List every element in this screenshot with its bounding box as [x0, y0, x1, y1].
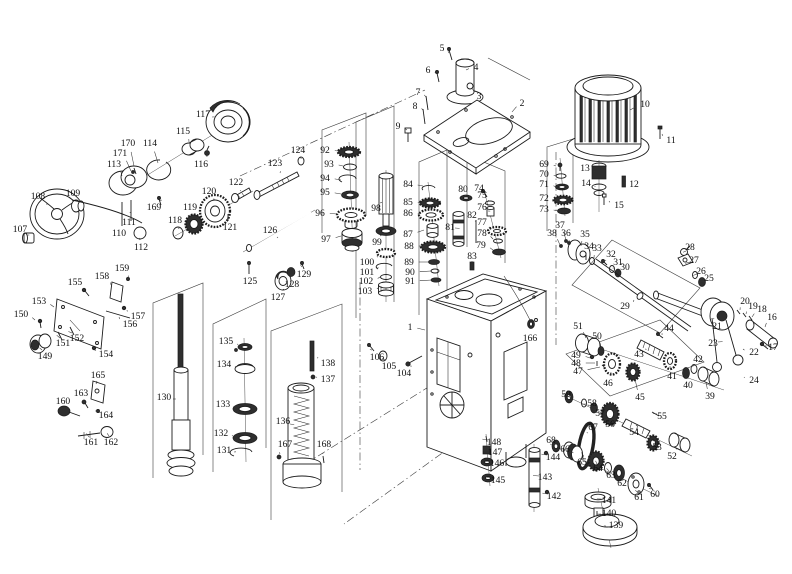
- leader-line-15: [609, 201, 610, 202]
- spindle-stack-c: [376, 170, 396, 302]
- leader-line-103: [377, 288, 378, 289]
- part-label-29: 29: [620, 301, 630, 312]
- leader-line-154: [95, 350, 96, 351]
- part-label-27: 27: [689, 255, 699, 266]
- part-label-165: 165: [91, 370, 106, 381]
- part-label-10: 10: [640, 99, 650, 110]
- part-label-32: 32: [606, 249, 616, 260]
- leader-line-159: [128, 276, 129, 277]
- part-label-137: 137: [321, 374, 336, 385]
- part-label-104: 104: [397, 368, 412, 379]
- exploded-parts-diagram: 1234567891011121314151617181920212223242…: [0, 0, 792, 574]
- part-label-107: 107: [13, 224, 28, 235]
- part-label-76: 76: [477, 202, 487, 213]
- part-label-9: 9: [396, 121, 401, 132]
- leader-line-84: [418, 185, 423, 186]
- part-label-131: 131: [217, 445, 232, 456]
- part-label-46: 46: [603, 378, 613, 389]
- part-label-155: 155: [68, 277, 83, 288]
- leader-line-79: [490, 248, 493, 250]
- snap-ring-114: [147, 160, 171, 180]
- part-label-86: 86: [403, 208, 413, 219]
- body-window: [437, 338, 460, 392]
- part-label-15: 15: [614, 200, 624, 211]
- part-label-151: 151: [56, 338, 71, 349]
- part-label-77: 77: [477, 217, 487, 228]
- part-label-79: 79: [476, 240, 486, 251]
- part-label-139: 139: [609, 520, 624, 531]
- part-label-161: 161: [84, 437, 99, 448]
- screw-137: [311, 375, 315, 379]
- part-label-11: 11: [666, 135, 675, 146]
- leader-line-156: [119, 317, 120, 319]
- part-label-118: 118: [168, 215, 182, 226]
- part-label-65: 65: [577, 457, 587, 468]
- leader-line-97: [336, 236, 341, 238]
- part-label-149: 149: [38, 351, 53, 362]
- part-label-40: 40: [683, 380, 693, 391]
- part-label-57: 57: [595, 408, 605, 419]
- part-label-66: 66: [560, 444, 570, 455]
- part-label-80: 80: [458, 184, 468, 195]
- part-label-78: 78: [477, 228, 487, 239]
- part-label-127: 127: [271, 292, 286, 303]
- body-spoked-port: [440, 392, 464, 418]
- motor-coupling: [592, 166, 606, 179]
- leader-line-150: [32, 318, 35, 320]
- part-label-8: 8: [413, 101, 418, 112]
- part-label-142: 142: [547, 491, 562, 502]
- part-label-112: 112: [134, 242, 148, 253]
- leader-line-24: [744, 377, 745, 378]
- small-plate-158: [110, 282, 123, 302]
- part-label-68: 68: [546, 435, 556, 446]
- part-label-154: 154: [99, 349, 114, 360]
- part-label-163: 163: [74, 388, 89, 399]
- part-label-53: 53: [652, 442, 662, 453]
- part-label-35: 35: [580, 229, 590, 240]
- leader-line-47: [588, 367, 600, 370]
- part-label-17: 17: [768, 342, 778, 353]
- column-shaft: [167, 294, 195, 476]
- pulley-cluster: [23, 100, 305, 243]
- leader-line-95: [335, 193, 341, 194]
- leader-line-93: [339, 165, 343, 166]
- part-labels: 1234567891011121314151617181920212223242…: [13, 43, 778, 531]
- nut-128: [287, 268, 295, 277]
- part-label-13: 13: [580, 163, 590, 174]
- part-label-91: 91: [405, 276, 415, 287]
- leader-line-18: [752, 314, 754, 317]
- leader-line-138: [318, 357, 319, 358]
- leader-line-45: [635, 379, 637, 390]
- leader-line-19: [746, 312, 747, 315]
- screw-168: [323, 456, 324, 463]
- part-label-132: 132: [214, 428, 229, 439]
- part-label-134: 134: [217, 359, 232, 370]
- part-label-92: 92: [320, 145, 330, 156]
- leader-line-1: [417, 328, 425, 330]
- diagram-canvas: 1234567891011121314151617181920212223242…: [0, 0, 792, 574]
- part-label-141: 141: [602, 495, 617, 506]
- part-label-60: 60: [650, 489, 660, 500]
- part-label-34: 34: [584, 241, 594, 252]
- leader-line-87: [418, 230, 425, 232]
- leader-line-69: [554, 165, 556, 166]
- part-label-51: 51: [573, 321, 583, 332]
- part-label-38: 38: [547, 228, 557, 239]
- leader-line-49: [586, 357, 590, 359]
- part-label-81: 81: [445, 222, 455, 233]
- part-label-126: 126: [263, 225, 278, 236]
- bearing-hub: [109, 166, 147, 195]
- handwheel-handle: [72, 200, 85, 212]
- part-label-49: 49: [571, 350, 581, 361]
- part-label-1: 1: [408, 322, 413, 333]
- part-label-122: 122: [229, 177, 244, 188]
- part-label-56: 56: [605, 419, 615, 430]
- part-label-97: 97: [321, 234, 331, 245]
- part-label-43: 43: [634, 349, 644, 360]
- part-label-140: 140: [602, 508, 617, 519]
- part-label-22: 22: [749, 347, 759, 358]
- part-label-23: 23: [708, 338, 718, 349]
- motor-bolt: [658, 126, 662, 139]
- part-label-133: 133: [216, 399, 231, 410]
- part-label-108: 108: [31, 191, 46, 202]
- leader-line-5: [448, 51, 449, 53]
- part-label-14: 14: [581, 178, 591, 189]
- leader-line-94: [335, 179, 341, 180]
- part-label-72: 72: [539, 193, 549, 204]
- leader-line-132: [232, 435, 233, 436]
- part-label-130: 130: [157, 392, 172, 403]
- leader-line-2: [512, 107, 517, 112]
- part-label-7: 7: [416, 87, 421, 98]
- part-label-71: 71: [539, 179, 549, 190]
- part-label-106: 106: [370, 352, 385, 363]
- part-label-98: 98: [371, 203, 381, 214]
- set-screw-116: [205, 146, 210, 156]
- motor-gear-stack: [554, 158, 573, 216]
- part-label-16: 16: [767, 312, 777, 323]
- hub-149: [30, 334, 51, 353]
- leader-line-102: [378, 277, 380, 279]
- part-label-146: 146: [490, 458, 505, 469]
- part-label-83: 83: [467, 251, 477, 262]
- part-label-103: 103: [358, 286, 373, 297]
- part-label-120: 120: [202, 186, 217, 197]
- part-label-110: 110: [112, 228, 126, 239]
- part-label-28: 28: [685, 242, 695, 253]
- part-label-152: 152: [70, 333, 85, 344]
- part-label-138: 138: [321, 358, 336, 369]
- part-label-12: 12: [629, 179, 639, 190]
- part-label-167: 167: [278, 439, 293, 450]
- leader-line-78: [491, 237, 493, 240]
- part-label-44: 44: [664, 323, 674, 334]
- leader-line-99: [380, 235, 381, 236]
- part-label-166: 166: [523, 333, 538, 344]
- part-label-55: 55: [657, 411, 667, 422]
- part-label-158: 158: [95, 271, 110, 282]
- part-label-18: 18: [757, 304, 767, 315]
- clutch-cluster: [560, 240, 706, 332]
- part-label-82: 82: [467, 210, 477, 221]
- part-label-20: 20: [740, 296, 750, 307]
- leader-line-170: [131, 152, 134, 166]
- part-label-26: 26: [696, 266, 706, 277]
- part-label-113: 113: [107, 159, 121, 170]
- part-label-39: 39: [705, 391, 715, 402]
- part-label-115: 115: [176, 126, 190, 137]
- quill-assembly: [277, 341, 324, 488]
- part-label-73: 73: [539, 204, 549, 215]
- part-label-124: 124: [291, 145, 306, 156]
- part-label-129: 129: [297, 269, 312, 280]
- part-label-21: 21: [712, 321, 722, 332]
- leader-line-129: [301, 265, 302, 267]
- leader-line-16: [765, 323, 766, 327]
- part-label-147: 147: [488, 447, 503, 458]
- part-label-114: 114: [143, 138, 157, 149]
- part-label-111: 111: [122, 217, 136, 228]
- part-label-88: 88: [404, 241, 414, 252]
- part-label-87: 87: [403, 229, 413, 240]
- part-label-160: 160: [56, 396, 71, 407]
- part-label-135: 135: [219, 336, 234, 347]
- part-label-109: 109: [66, 188, 81, 199]
- part-label-117: 117: [196, 109, 210, 120]
- part-label-45: 45: [635, 392, 645, 403]
- part-label-50: 50: [592, 331, 602, 342]
- part-label-145: 145: [491, 475, 506, 486]
- part-label-2: 2: [520, 98, 525, 109]
- leader-line-29: [633, 300, 634, 302]
- leader-line-7: [424, 95, 426, 97]
- leader-line-126: [277, 237, 278, 238]
- leader-line-100: [377, 256, 378, 257]
- leader-line-96: [330, 213, 337, 214]
- part-label-143: 143: [538, 472, 553, 483]
- bearing-stack: [230, 338, 257, 462]
- leader-line-38: [557, 239, 560, 245]
- part-label-61: 61: [634, 492, 644, 503]
- part-label-96: 96: [315, 208, 325, 219]
- gear-shaft-middle: [562, 391, 692, 456]
- motor-assembly: [567, 75, 662, 212]
- leader-line-123: [280, 171, 281, 173]
- leader-line-114: [155, 152, 159, 164]
- part-label-171: 171: [113, 148, 128, 159]
- leader-line-122: [240, 190, 241, 191]
- part-label-5: 5: [440, 43, 445, 54]
- knob-52: [669, 433, 690, 452]
- main-body: [367, 274, 546, 471]
- part-label-94: 94: [320, 173, 330, 184]
- sleeve-115: [182, 139, 204, 155]
- part-label-64: 64: [593, 463, 603, 474]
- part-label-159: 159: [115, 263, 130, 274]
- part-label-62: 62: [617, 478, 627, 489]
- part-label-144: 144: [546, 452, 561, 463]
- leader-line-90: [420, 271, 431, 272]
- part-label-125: 125: [243, 276, 258, 287]
- gear-stack-d: [419, 182, 445, 286]
- long-rod-29: [593, 259, 691, 331]
- leader-line-91: [420, 280, 432, 281]
- leader-line-112: [139, 238, 140, 240]
- part-label-67: 67: [588, 422, 598, 433]
- part-label-59: 59: [561, 389, 571, 400]
- part-label-95: 95: [320, 187, 330, 198]
- part-label-63: 63: [606, 470, 616, 481]
- part-label-153: 153: [32, 296, 47, 307]
- part-label-123: 123: [268, 158, 283, 169]
- part-label-99: 99: [372, 237, 382, 248]
- part-label-168: 168: [317, 439, 332, 450]
- part-label-41: 41: [667, 371, 677, 382]
- part-label-169: 169: [147, 202, 162, 213]
- part-label-6: 6: [426, 65, 431, 76]
- part-label-52: 52: [667, 451, 677, 462]
- part-label-162: 162: [104, 437, 119, 448]
- part-label-58: 58: [587, 398, 597, 409]
- part-label-42: 42: [693, 354, 703, 365]
- leader-line-118: [178, 228, 179, 229]
- part-label-3: 3: [477, 91, 482, 102]
- leader-line-11: [662, 134, 663, 136]
- part-label-116: 116: [194, 159, 208, 170]
- screw-167: [277, 455, 281, 459]
- part-label-164: 164: [99, 410, 114, 421]
- part-label-128: 128: [285, 279, 300, 290]
- part-label-148: 148: [487, 437, 502, 448]
- part-label-24: 24: [749, 375, 759, 386]
- part-label-85: 85: [403, 197, 413, 208]
- part-label-84: 84: [403, 179, 413, 190]
- part-label-157: 157: [131, 311, 146, 322]
- part-label-75: 75: [477, 190, 487, 201]
- leader-line-22: [743, 349, 745, 350]
- spindle-pulley: [206, 100, 250, 142]
- leader-line-153: [50, 304, 54, 307]
- part-label-54: 54: [629, 427, 639, 438]
- part-label-150: 150: [14, 309, 29, 320]
- part-label-4: 4: [474, 62, 479, 73]
- leader-line-167: [280, 452, 281, 454]
- part-label-121: 121: [223, 222, 238, 233]
- spindle-stack-b: [337, 142, 365, 252]
- part-label-93: 93: [324, 159, 334, 170]
- part-label-136: 136: [276, 416, 291, 427]
- rod-138: [310, 341, 314, 371]
- top-plate-assembly: [405, 47, 530, 174]
- part-label-119: 119: [183, 202, 197, 213]
